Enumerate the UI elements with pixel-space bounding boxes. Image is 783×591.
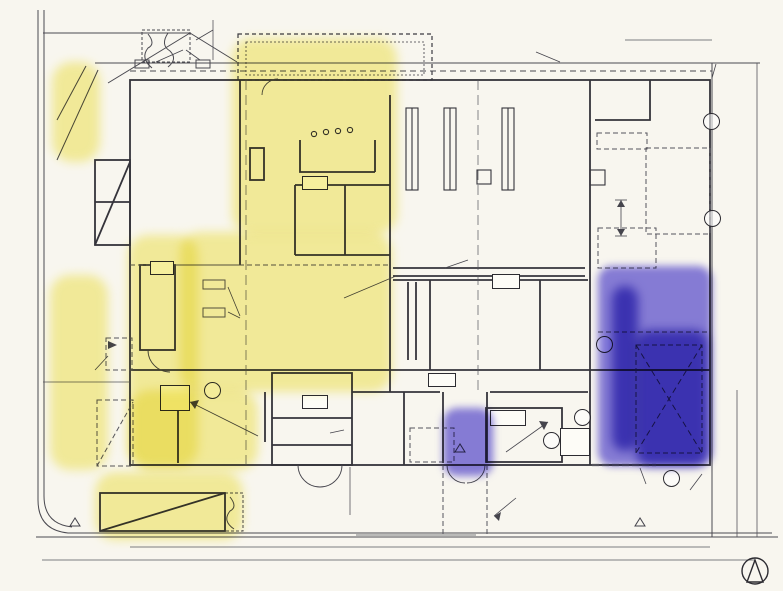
fire-shutter-mark-1 — [663, 470, 680, 487]
fire-shutter-mark-3 — [704, 210, 721, 227]
plan-linework — [0, 0, 783, 591]
shaft-ps-2 — [302, 176, 328, 190]
floor-plan — [0, 0, 783, 591]
shaft-ps-5 — [428, 373, 456, 387]
shaft-ps-3 — [492, 274, 520, 289]
fire-door-mark-4 — [596, 336, 613, 353]
fire-door-mark-3 — [574, 409, 591, 426]
fire-shutter-mark-2 — [703, 113, 720, 130]
fire-door-mark-1 — [204, 382, 221, 399]
shaft-ps-1 — [150, 261, 174, 275]
shaft-eps — [490, 410, 526, 426]
elevator-passenger — [160, 385, 190, 411]
north-arrow — [742, 558, 768, 584]
shaft-ps-4 — [302, 395, 328, 409]
fire-door-mark-2 — [543, 432, 560, 449]
elevator-service — [560, 428, 590, 456]
